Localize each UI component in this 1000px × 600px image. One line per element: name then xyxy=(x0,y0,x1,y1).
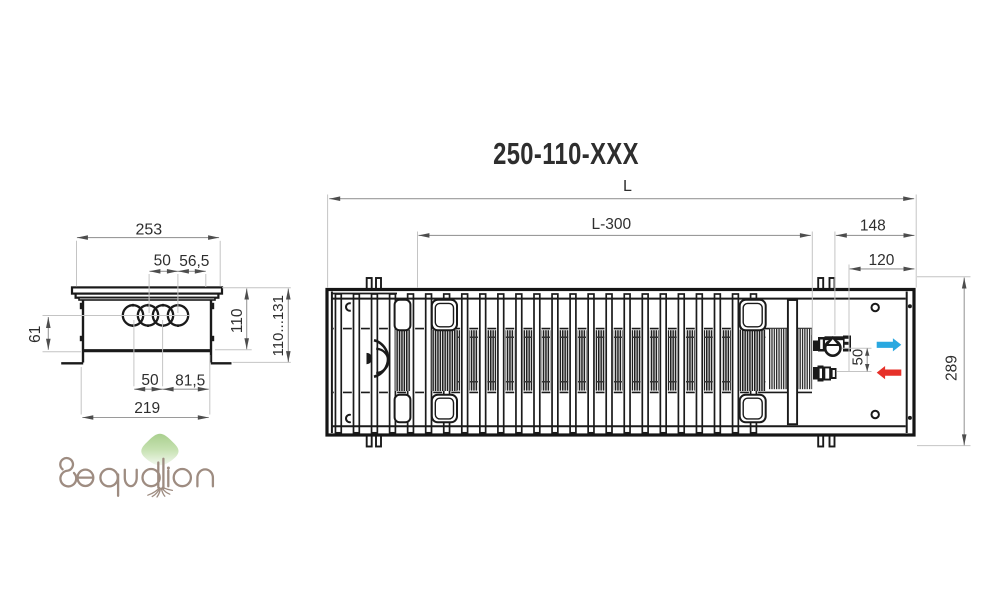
svg-text:148: 148 xyxy=(860,218,886,235)
svg-text:219: 219 xyxy=(134,400,160,417)
svg-text:250-110-XXX: 250-110-XXX xyxy=(493,136,639,171)
svg-text:120: 120 xyxy=(868,252,894,269)
svg-text:50: 50 xyxy=(141,372,159,389)
svg-text:289: 289 xyxy=(943,355,960,381)
svg-text:61: 61 xyxy=(27,326,44,343)
svg-text:L-300: L-300 xyxy=(591,216,631,233)
svg-text:110...131: 110...131 xyxy=(270,295,287,356)
svg-text:50: 50 xyxy=(154,253,172,270)
svg-text:253: 253 xyxy=(135,222,162,239)
svg-text:50: 50 xyxy=(849,349,866,366)
svg-text:110: 110 xyxy=(229,308,246,333)
svg-text:81,5: 81,5 xyxy=(175,372,205,389)
svg-text:L: L xyxy=(623,178,632,195)
svg-text:56,5: 56,5 xyxy=(179,253,209,270)
